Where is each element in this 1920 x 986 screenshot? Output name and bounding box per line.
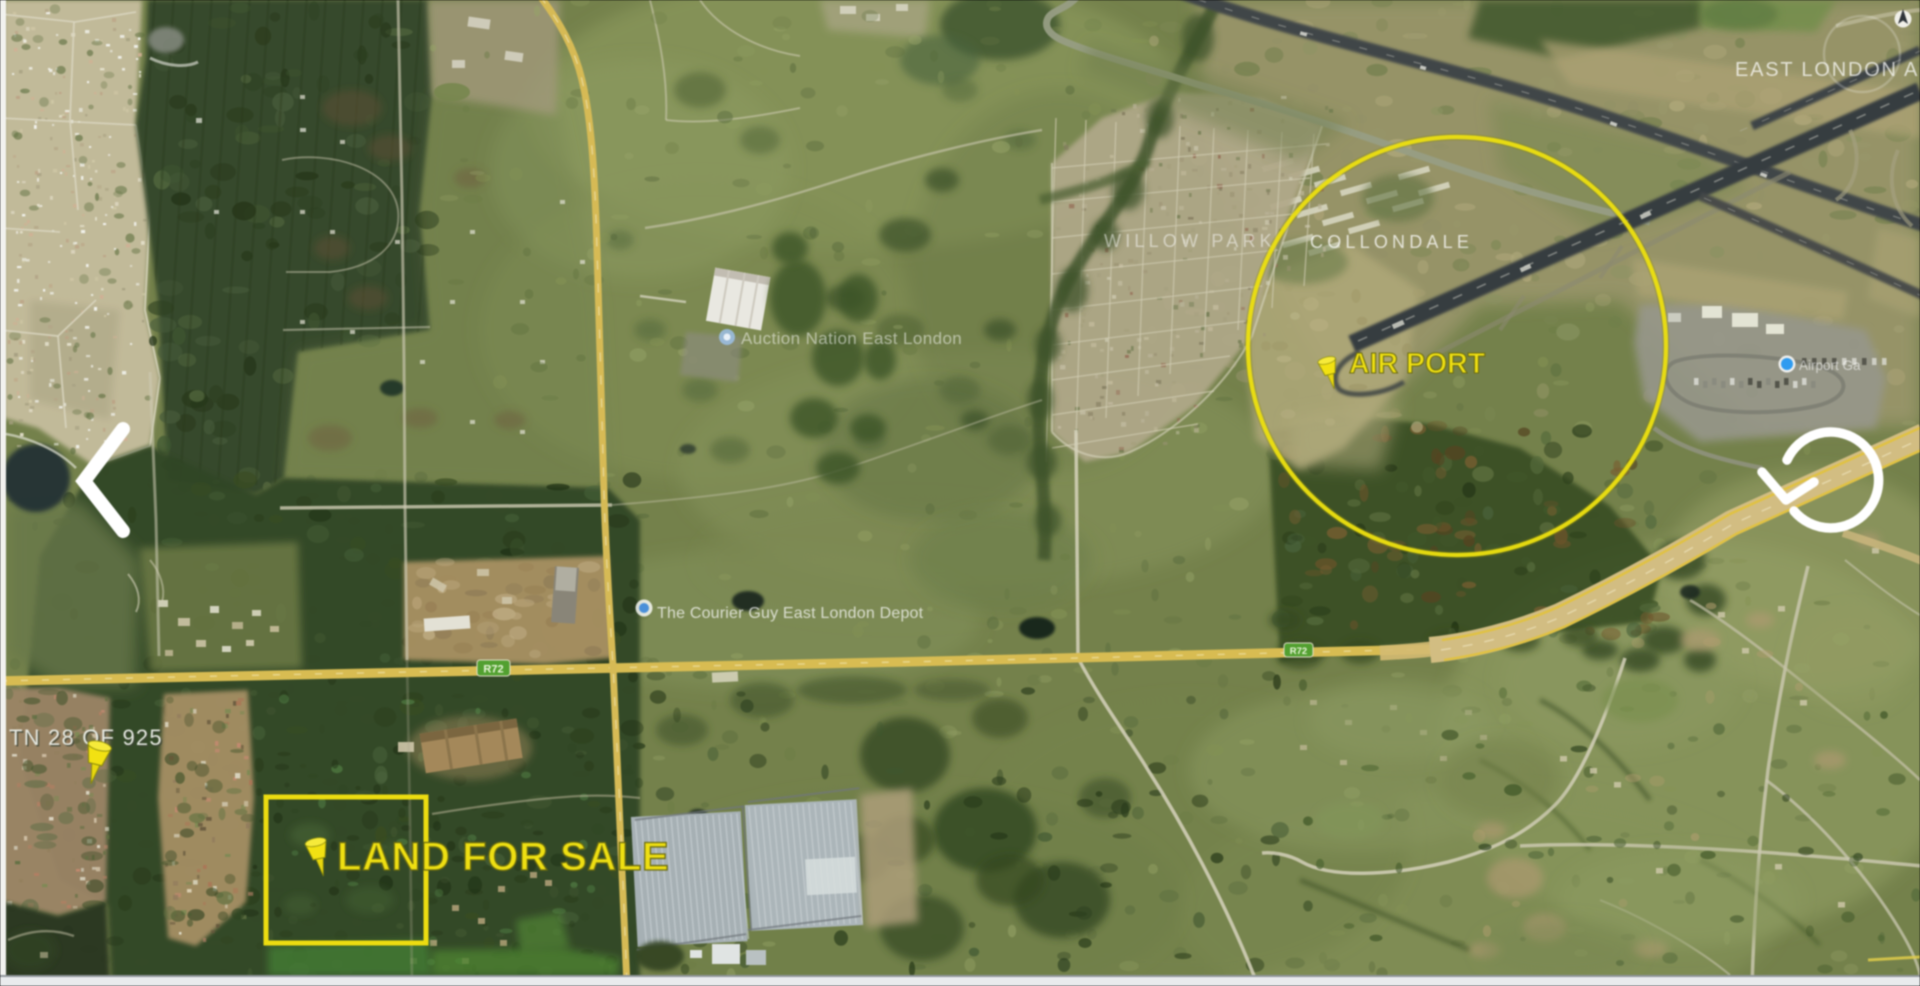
svg-text:TN 28 OF 925: TN 28 OF 925 bbox=[9, 725, 163, 750]
svg-text:Auction Nation East London: Auction Nation East London bbox=[741, 329, 962, 348]
svg-text:AIR PORT: AIR PORT bbox=[1349, 348, 1486, 380]
svg-text:R72: R72 bbox=[483, 664, 503, 676]
svg-text:The Courier Guy East London De: The Courier Guy East London Depot bbox=[657, 605, 924, 622]
svg-text:R72: R72 bbox=[1290, 646, 1307, 657]
svg-text:COLLONDALE: COLLONDALE bbox=[1310, 232, 1473, 252]
svg-text:WILLOW PARK: WILLOW PARK bbox=[1104, 231, 1276, 251]
svg-text:LAND FOR SALE: LAND FOR SALE bbox=[337, 835, 669, 879]
svg-text:Airport Ga: Airport Ga bbox=[1799, 358, 1861, 373]
